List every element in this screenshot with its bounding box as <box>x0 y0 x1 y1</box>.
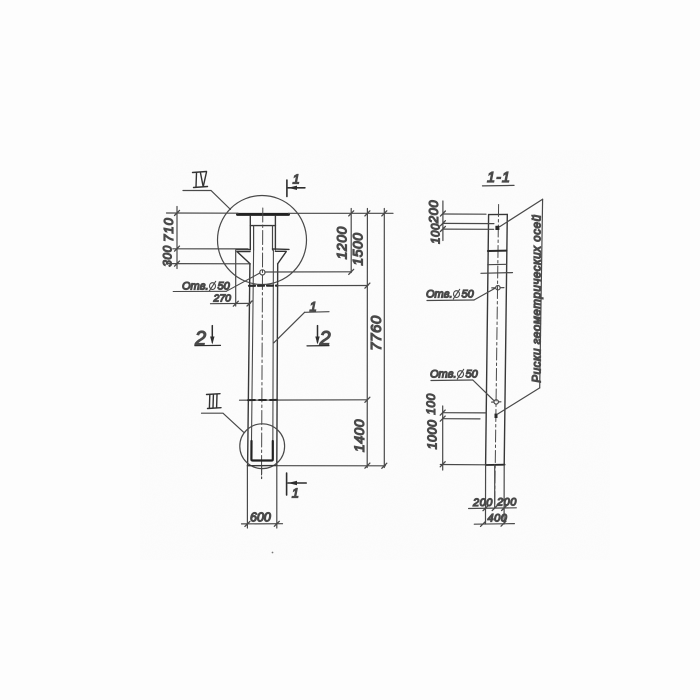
svg-text:100: 100 <box>431 223 443 244</box>
svg-text:2: 2 <box>194 328 206 350</box>
svg-text:7760: 7760 <box>368 315 385 351</box>
svg-text:200: 200 <box>472 497 493 509</box>
svg-text:Отв.: Отв. <box>426 289 453 301</box>
svg-text:Риски геометрических осей: Риски геометрических осей <box>531 214 544 382</box>
svg-text:1-1: 1-1 <box>487 170 511 186</box>
svg-text:1: 1 <box>292 486 299 501</box>
svg-text:50: 50 <box>218 281 231 293</box>
svg-text:Отв.: Отв. <box>430 369 457 381</box>
svg-text:50: 50 <box>462 289 475 301</box>
svg-text:1: 1 <box>293 172 300 187</box>
svg-text:400: 400 <box>488 512 508 524</box>
svg-text:Отв.: Отв. <box>182 281 209 293</box>
svg-text:1200: 1200 <box>334 226 350 259</box>
svg-text:1400: 1400 <box>351 419 367 452</box>
svg-text:200: 200 <box>426 200 441 224</box>
svg-text:200: 200 <box>496 496 517 508</box>
svg-text:1000: 1000 <box>426 420 440 450</box>
svg-text:600: 600 <box>250 511 271 525</box>
svg-text:710: 710 <box>161 217 176 242</box>
svg-text:300: 300 <box>161 245 175 267</box>
svg-text:100: 100 <box>424 393 438 415</box>
svg-text:50: 50 <box>466 369 479 381</box>
svg-text:2: 2 <box>319 328 331 350</box>
svg-text:1500: 1500 <box>350 232 366 265</box>
svg-text:270: 270 <box>213 293 232 305</box>
